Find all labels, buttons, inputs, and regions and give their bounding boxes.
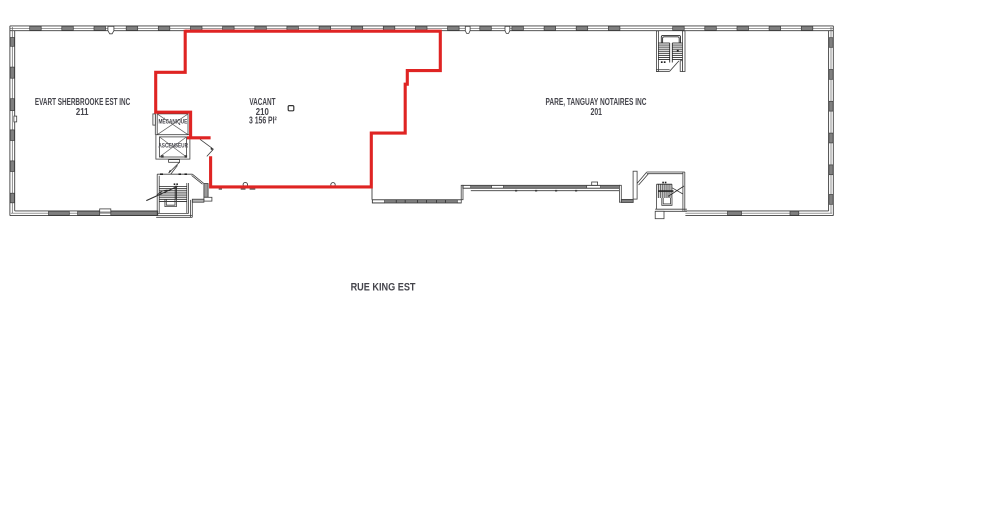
svg-text:201: 201 (591, 107, 603, 118)
svg-text:211: 211 (76, 107, 89, 118)
svg-text:3 156 PI²: 3 156 PI² (249, 116, 277, 127)
svg-text:MÉCANIQUE: MÉCANIQUE (159, 116, 188, 125)
svg-text:RUE KING EST: RUE KING EST (351, 282, 416, 294)
svg-text:ASCENSEUR: ASCENSEUR (158, 142, 188, 149)
